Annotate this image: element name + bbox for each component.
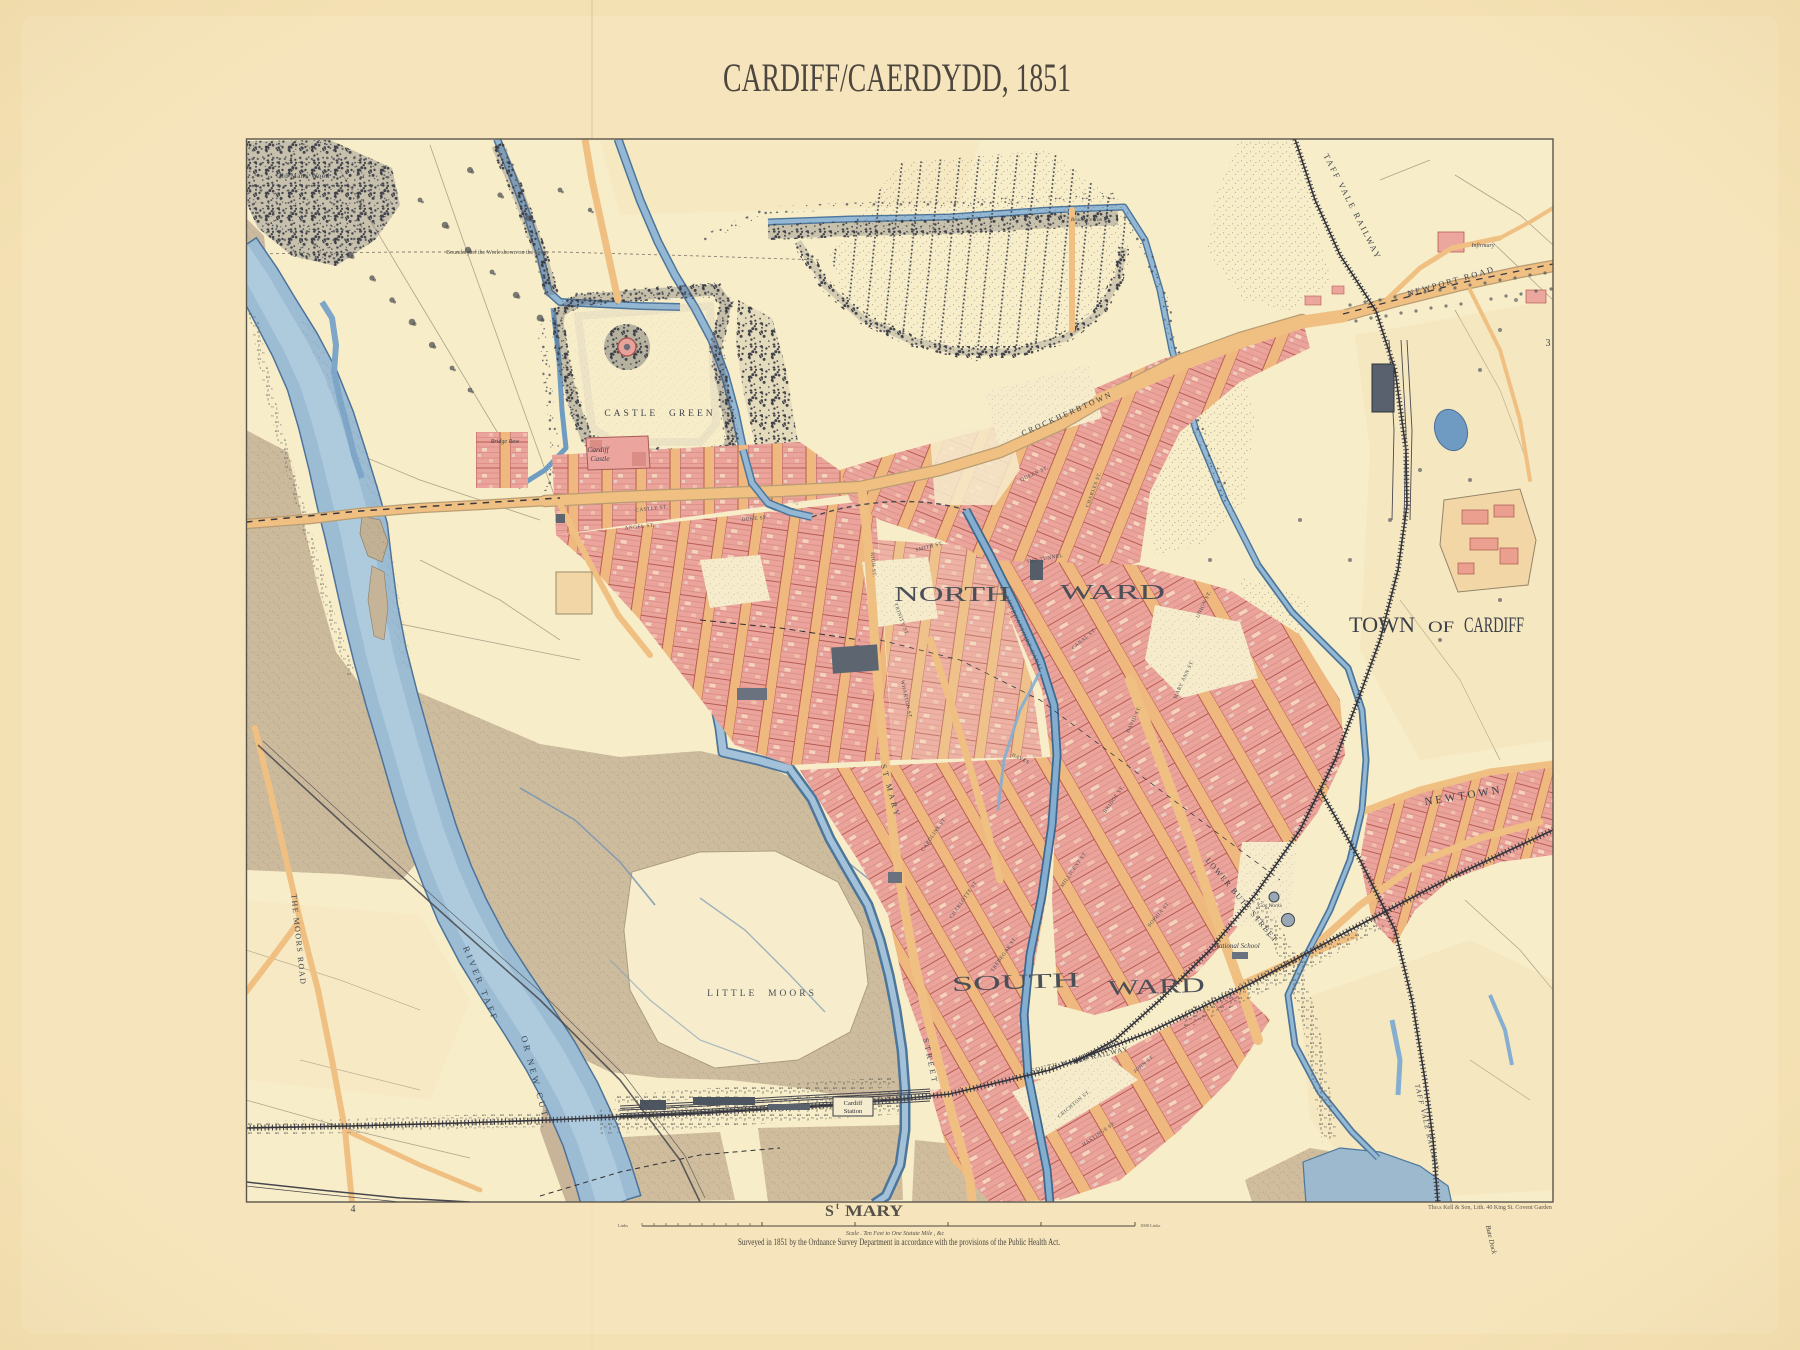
svg-text:WARD: WARD [1107, 973, 1205, 1000]
svg-text:Tho.s Kell & Son, Lith. 40 Kin: Tho.s Kell & Son, Lith. 40 King St. Cove… [1428, 1205, 1552, 1211]
svg-text:Cardiff: Cardiff [844, 1100, 863, 1107]
svg-text:OF: OF [1428, 619, 1454, 636]
svg-text:Old Manx Wood: Old Manx Wood [276, 172, 329, 180]
svg-text:Gas Works: Gas Works [1258, 903, 1282, 909]
svg-text:Castle: Castle [590, 454, 610, 463]
svg-text:WARD: WARD [1060, 580, 1165, 604]
svg-text:SOUTH: SOUTH [951, 968, 1080, 996]
svg-text:Boundary of the Work shown on: Boundary of the Work shown on the Sec.n [446, 249, 548, 256]
svg-text:NORTH: NORTH [894, 582, 1010, 606]
svg-text:Cardiff: Cardiff [587, 445, 609, 454]
svg-text:4: 4 [351, 1204, 356, 1215]
svg-text:1000 Links: 1000 Links [1140, 1223, 1161, 1228]
svg-text:CASTLE GREEN: CASTLE GREEN [604, 409, 715, 419]
svg-text:S: S [825, 1203, 834, 1220]
svg-text:MARY: MARY [845, 1203, 904, 1220]
svg-text:LITTLE MOORS: LITTLE MOORS [707, 989, 817, 999]
svg-text:3: 3 [1546, 338, 1551, 349]
svg-text:Infirmary: Infirmary [1471, 242, 1495, 249]
svg-text:Bradley's Iron P.t: Bradley's Iron P.t [1071, 217, 1110, 223]
svg-text:t: t [836, 1201, 839, 1211]
svg-text:CARDIFF: CARDIFF [1464, 612, 1524, 637]
svg-text:National School: National School [1213, 942, 1259, 950]
svg-text:CARDIFF/CAERDYDD, 1851: CARDIFF/CAERDYDD, 1851 [723, 55, 1071, 100]
svg-text:Surveyed in 1851 by the Ordnan: Surveyed in 1851 by the Ordnance Survey … [738, 1237, 1060, 1247]
svg-text:Links: Links [618, 1223, 628, 1228]
svg-text:TOWN: TOWN [1349, 612, 1415, 637]
svg-text:Station: Station [844, 1108, 863, 1115]
svg-text:Bridge Row: Bridge Row [491, 439, 520, 445]
